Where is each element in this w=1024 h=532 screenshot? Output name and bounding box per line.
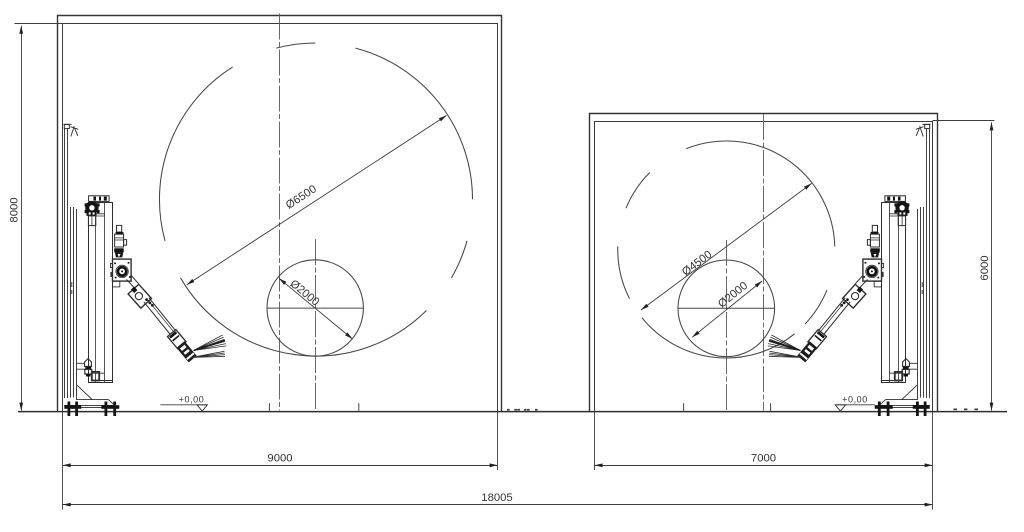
svg-text:+0,00: +0,00 (842, 394, 868, 404)
svg-text:8000: 8000 (9, 197, 21, 222)
svg-text:18005: 18005 (481, 492, 512, 504)
svg-text:7000: 7000 (751, 453, 776, 465)
svg-text:9000: 9000 (267, 453, 292, 465)
svg-text:6000: 6000 (979, 255, 991, 280)
svg-text:+0,00: +0,00 (179, 394, 205, 404)
